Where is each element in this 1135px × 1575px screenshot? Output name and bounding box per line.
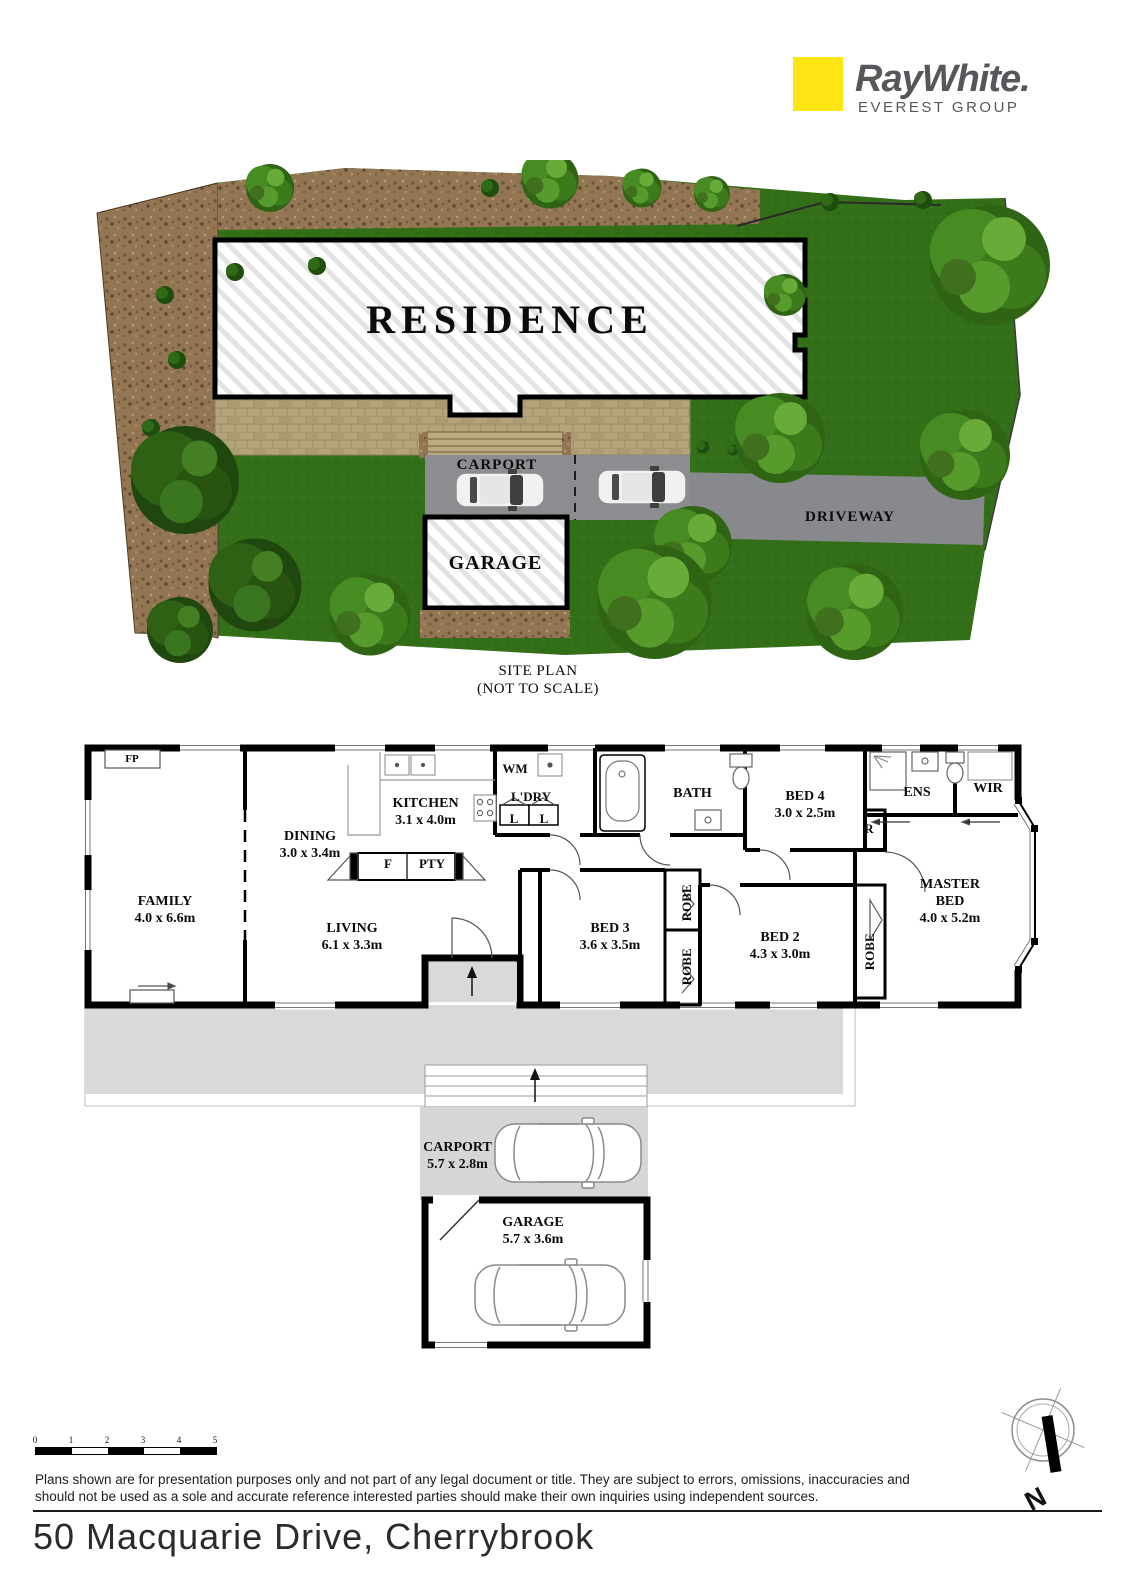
room-dims: 4.3 x 3.0m: [720, 947, 840, 964]
garage-mulch-strip: [420, 610, 570, 638]
tree-icon: [598, 545, 712, 659]
garage-label-site: GARAGE: [433, 551, 558, 575]
scale-tick: 4: [174, 1435, 184, 1445]
scale-tick: 0: [30, 1435, 40, 1445]
scale-seg: [144, 1448, 180, 1454]
pantry-label: PTY: [408, 856, 456, 872]
room-dims: 5.7 x 3.6m: [473, 1232, 593, 1249]
tree-icon: [147, 597, 213, 663]
scale-tick: 2: [102, 1435, 112, 1445]
compass-icon: [993, 1378, 1103, 1503]
room-label-bath: BATH: [655, 786, 730, 803]
tree-icon: [764, 274, 806, 316]
room-name: MASTER BED: [910, 877, 990, 911]
robe-label: ROBE: [679, 937, 695, 997]
room-label-family: FAMILY 4.0 x 6.6m: [105, 894, 225, 928]
footer-divider: [33, 1510, 1102, 1512]
disclaimer-line2: should not be used as a sole and accurat…: [35, 1488, 985, 1505]
carport-label-site: CARPORT: [437, 456, 557, 474]
room-label-carport: CARPORT 5.7 x 2.8m: [400, 1140, 515, 1174]
scale-seg: [180, 1448, 216, 1454]
raywhite-brand-name: RayWhite.: [855, 58, 1030, 101]
room-dims: 4.0 x 5.2m: [890, 911, 1010, 928]
property-address: 50 Macquarie Drive, Cherrybrook: [33, 1516, 594, 1558]
room-name: LIVING: [292, 921, 412, 938]
wm-label: WM: [495, 761, 535, 777]
room-name: BED 3: [550, 921, 670, 938]
robe-label: ROBE: [862, 922, 878, 982]
site-plan-illustration: [85, 160, 1060, 705]
room-name: BED 4: [745, 789, 865, 806]
scale-bar: [35, 1447, 217, 1455]
room-name: BED 2: [720, 930, 840, 947]
room-label-bed3: BED 3 3.6 x 3.5m: [550, 921, 670, 955]
caption-line1: SITE PLAN: [438, 662, 638, 680]
robe-label: ROBE: [679, 873, 695, 933]
room-dims: 3.1 x 4.0m: [363, 813, 488, 830]
room-dims: 3.0 x 2.5m: [745, 806, 865, 823]
tree-icon: [246, 164, 294, 212]
car-icon: [598, 466, 686, 508]
room-dims: 6.1 x 3.3m: [292, 938, 412, 955]
tree-icon: [209, 539, 302, 632]
linen-label: L: [530, 811, 558, 827]
scale-seg: [108, 1448, 144, 1454]
tree-icon: [735, 393, 825, 483]
raywhite-group-name: EVEREST GROUP: [858, 99, 1019, 116]
scale-seg: [36, 1448, 72, 1454]
room-dims: 3.0 x 3.4m: [250, 846, 370, 863]
room-label-dining: DINING 3.0 x 3.4m: [250, 829, 370, 863]
room-dims: 3.6 x 3.5m: [550, 938, 670, 955]
tree-icon: [920, 410, 1010, 500]
room-name: KITCHEN: [363, 796, 488, 813]
bathtub: [600, 755, 645, 831]
floor-plan: [80, 740, 1080, 1360]
room-label-wir: WIR: [958, 781, 1018, 798]
residence-label: RESIDENCE: [310, 296, 710, 344]
room-name: DINING: [250, 829, 370, 846]
tree-icon: [694, 176, 730, 212]
room-label-kitchen: KITCHEN 3.1 x 4.0m: [363, 796, 488, 830]
tree-icon: [623, 169, 662, 208]
room-name: FAMILY: [105, 894, 225, 911]
scale-tick: 5: [210, 1435, 220, 1445]
laundry-label: L'DRY: [498, 789, 564, 805]
tree-icon: [930, 205, 1050, 325]
room-label-bed2: BED 2 4.3 x 3.0m: [720, 930, 840, 964]
fireplace-label: FP: [112, 753, 152, 766]
tree-icon: [807, 564, 903, 660]
raywhite-logo-mark: [793, 57, 843, 111]
scale-tick: 1: [66, 1435, 76, 1445]
room-name: CARPORT: [400, 1140, 515, 1157]
room-label-ens: ENS: [887, 785, 947, 802]
site-plan-caption: SITE PLAN (NOT TO SCALE): [438, 662, 638, 698]
disclaimer-line1: Plans shown are for presentation purpose…: [35, 1471, 985, 1488]
entry-steps: [425, 1065, 647, 1107]
disclaimer-text: Plans shown are for presentation purpose…: [35, 1471, 985, 1505]
fridge-label: F: [372, 856, 404, 872]
page: RayWhite. EVEREST GROUP: [0, 0, 1135, 1575]
linen-label: L: [500, 811, 528, 827]
room-label-living: LIVING 6.1 x 3.3m: [292, 921, 412, 955]
room-label-master: MASTER BED 4.0 x 5.2m: [910, 877, 990, 927]
bay-window: [1013, 797, 1038, 973]
robe-r-label: R: [858, 821, 880, 837]
tree-icon: [330, 575, 411, 656]
room-dims: 4.0 x 6.6m: [105, 911, 225, 928]
scale-seg: [72, 1448, 108, 1454]
caption-line2: (NOT TO SCALE): [438, 680, 638, 698]
tree-icon: [131, 426, 239, 534]
room-dims: 5.7 x 2.8m: [400, 1157, 515, 1174]
entry-porch: [429, 962, 517, 1002]
room-label-garage: GARAGE 5.7 x 3.6m: [473, 1215, 593, 1249]
driveway-label-site: DRIVEWAY: [780, 508, 920, 526]
room-name: GARAGE: [473, 1215, 593, 1232]
car-icon: [456, 469, 544, 511]
room-label-bed4: BED 4 3.0 x 2.5m: [745, 789, 865, 823]
scale-tick: 3: [138, 1435, 148, 1445]
